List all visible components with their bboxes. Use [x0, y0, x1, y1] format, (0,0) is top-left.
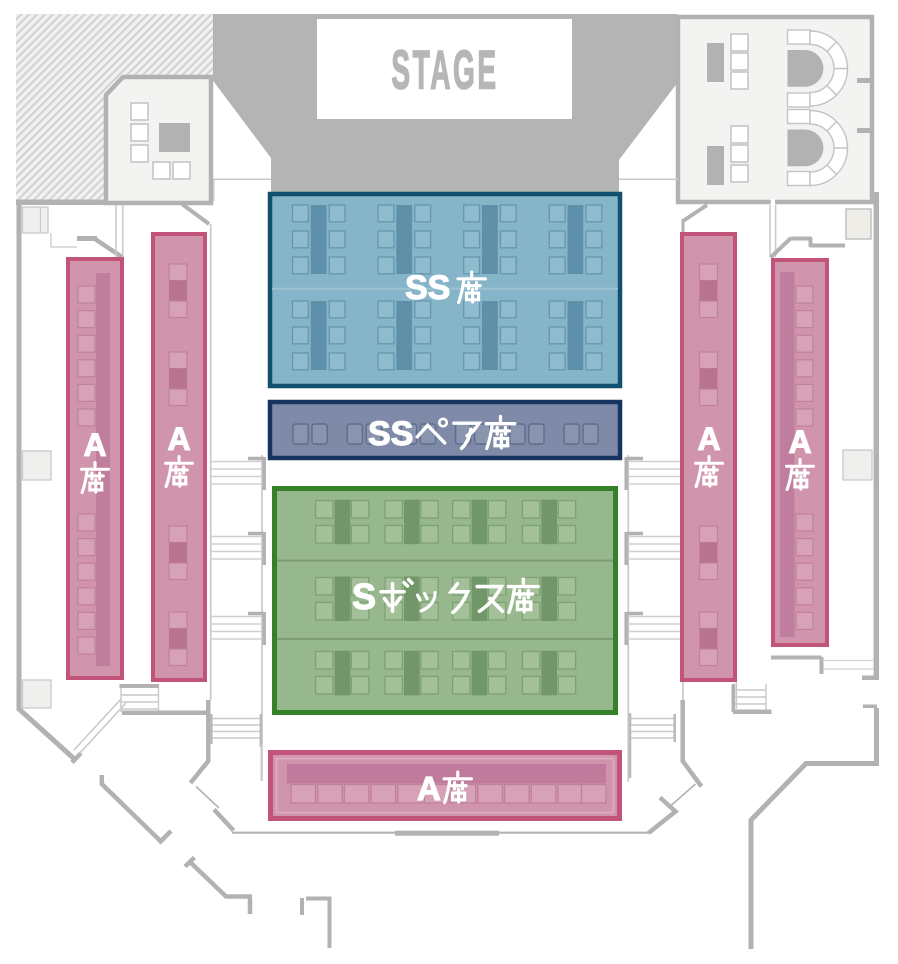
svg-text:A: A — [83, 427, 106, 463]
svg-text:A: A — [167, 421, 190, 457]
svg-text:S: S — [352, 576, 376, 617]
svg-text:A: A — [417, 770, 441, 807]
svg-text:SS: SS — [405, 269, 450, 307]
svg-text:A: A — [788, 424, 811, 460]
svg-text:A: A — [697, 421, 720, 457]
svg-text:SS: SS — [368, 415, 413, 453]
svg-text:STAGE: STAGE — [391, 39, 498, 101]
